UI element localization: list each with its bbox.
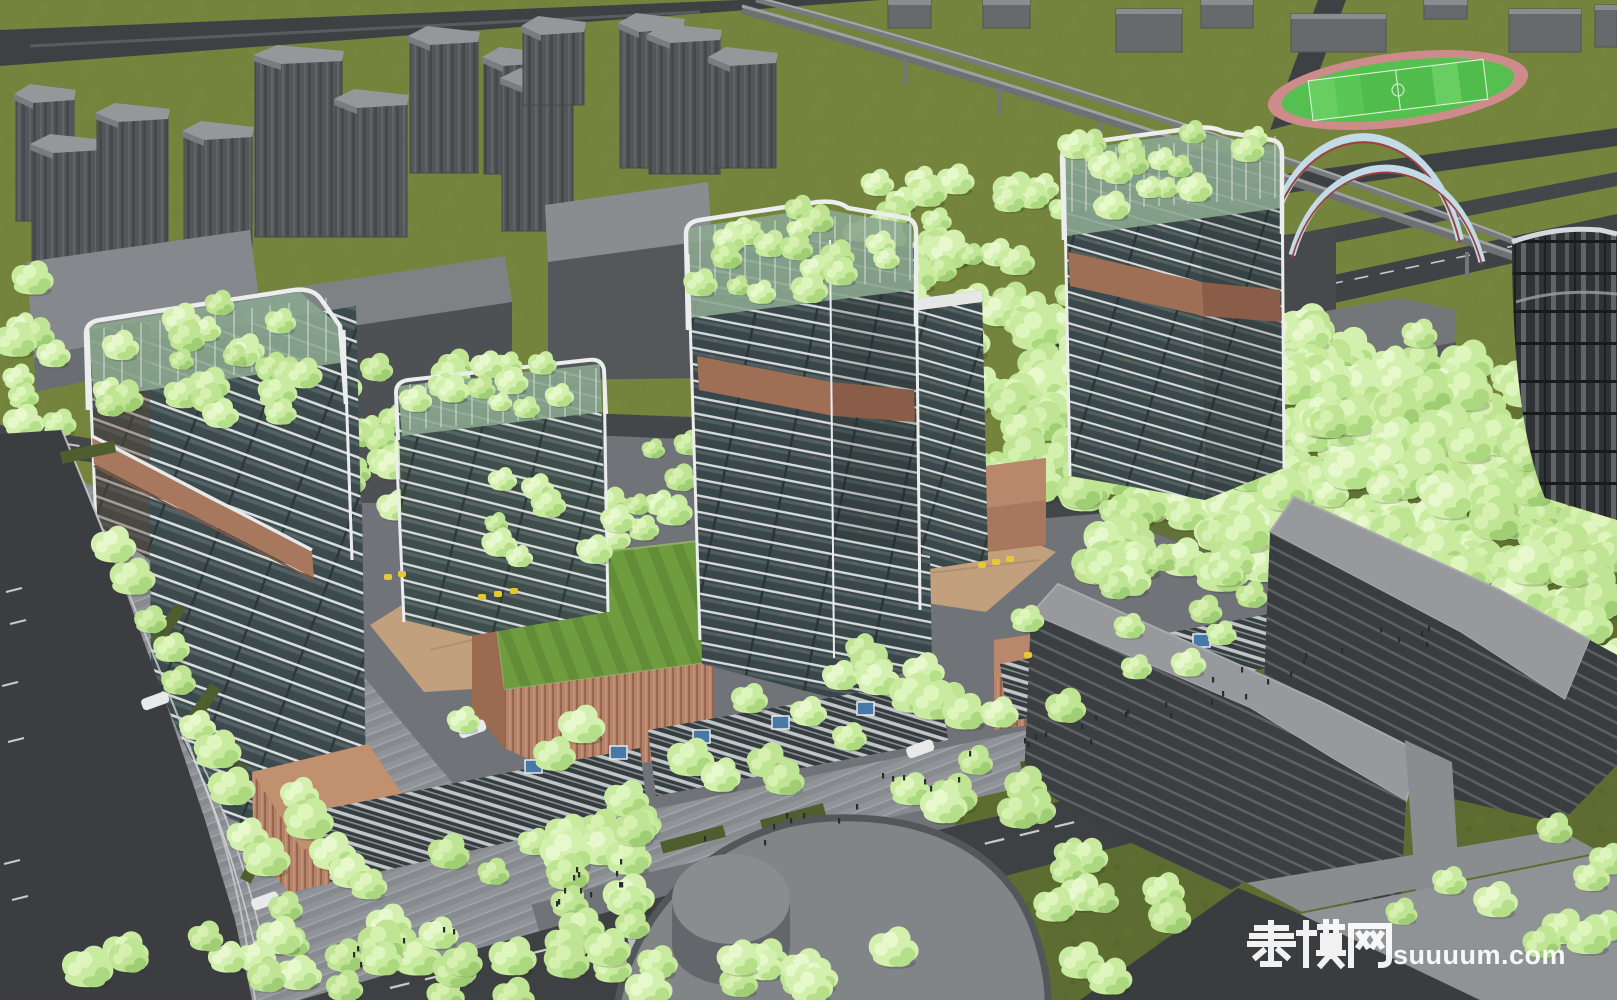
svg-text:suuuum.com: suuuum.com — [1393, 940, 1566, 970]
